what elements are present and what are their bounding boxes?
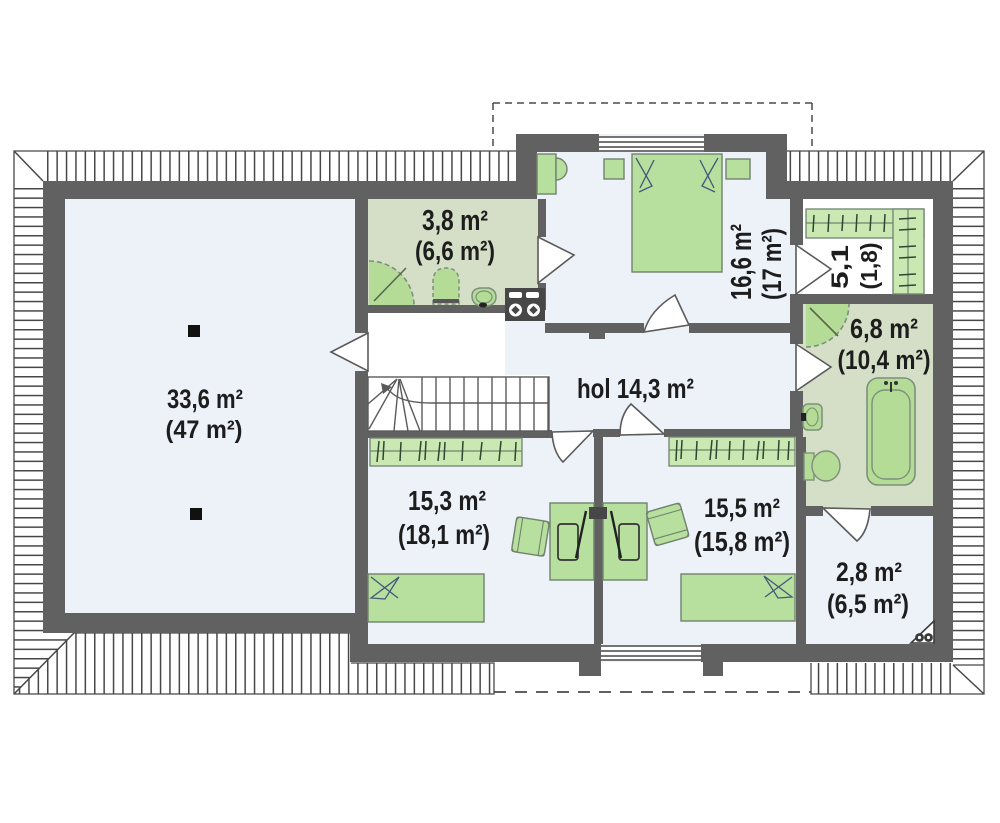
svg-text:(6,5 m²): (6,5 m²) (827, 589, 909, 619)
svg-text:15,3 m²: 15,3 m² (408, 485, 486, 516)
svg-text:(17 m²): (17 m²) (757, 228, 787, 300)
svg-text:5,1: 5,1 (827, 245, 854, 289)
svg-text:3,8 m²: 3,8 m² (422, 205, 488, 237)
svg-text:16,6 m²: 16,6 m² (726, 224, 758, 300)
svg-text:2,8 m²: 2,8 m² (836, 557, 902, 587)
svg-text:(47 m²): (47 m²) (166, 416, 243, 444)
svg-text:33,6 m²: 33,6 m² (167, 384, 243, 414)
svg-text:15,5 m²: 15,5 m² (704, 493, 780, 523)
svg-text:(15,8 m²): (15,8 m²) (694, 526, 790, 557)
svg-text:(18,1 m²): (18,1 m²) (398, 519, 490, 550)
svg-text:hol 14,3 m²: hol 14,3 m² (577, 373, 694, 404)
svg-text:(6,6 m²): (6,6 m²) (415, 236, 495, 266)
svg-text:(10,4 m²): (10,4 m²) (838, 345, 931, 375)
svg-text:6,8 m²: 6,8 m² (850, 313, 918, 344)
svg-text:(1,8): (1,8) (856, 243, 882, 290)
